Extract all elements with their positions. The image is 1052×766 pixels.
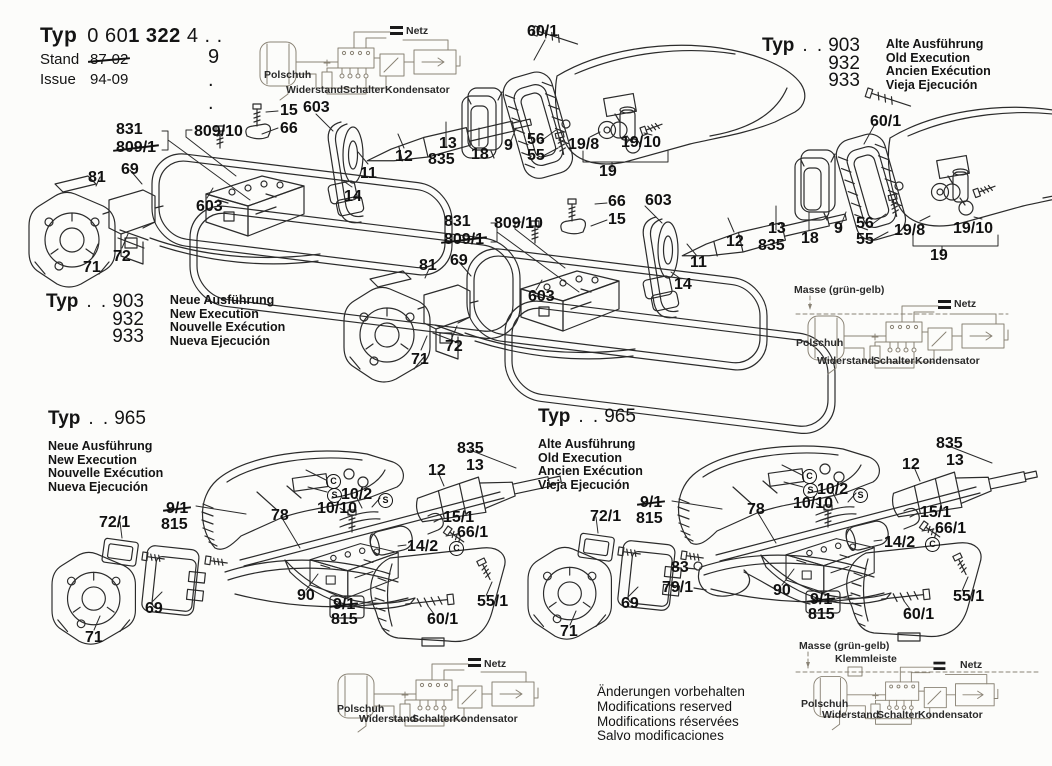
callout-72: 72 — [445, 339, 463, 355]
callout-circle-c: C — [802, 469, 817, 484]
wiring3-label-schalter: Schalter — [412, 714, 453, 725]
issue-label: Issue — [40, 71, 90, 88]
callout-56: 56 — [856, 216, 874, 232]
callout-10-10: 10/10 — [317, 501, 357, 517]
callout-18: 18 — [801, 231, 819, 247]
callout-14-2: 14/2 — [407, 539, 438, 555]
wiring4-label-masse: Masse (grün-gelb) — [799, 641, 889, 652]
wiring2-label-netz: Netz — [954, 299, 976, 310]
wiring4-label-polschuh: Polschuh — [801, 699, 848, 710]
callout-72: 72 — [113, 249, 131, 265]
callout-835: 835 — [936, 436, 963, 452]
callout-18: 18 — [471, 147, 489, 163]
wiring1-label-netz: Netz — [406, 26, 428, 37]
wiring3-label-widerstand: Widerstand — [359, 714, 416, 725]
stand-line: Stand87-02 — [40, 51, 223, 68]
callout-10-10: 10/10 — [793, 496, 833, 512]
callout-circle-s: S — [378, 493, 393, 508]
callout-13: 13 — [946, 453, 964, 469]
callout-11: 11 — [360, 166, 377, 182]
callout-11: 11 — [690, 255, 707, 271]
callout-9-1: 9/1 — [166, 501, 188, 517]
callout-12: 12 — [902, 457, 920, 473]
typ-dots: . . — [802, 35, 824, 56]
callout-15: 15 — [608, 212, 626, 228]
callout-66-1: 66/1 — [457, 525, 488, 541]
typ-dots: . . — [578, 406, 600, 427]
modification-notes: Änderungen vorbehalten Modifications res… — [597, 685, 745, 744]
wiring1-label-schalter: Schalter — [343, 85, 384, 96]
callout-71: 71 — [411, 352, 429, 368]
callout-809-10: 809/10 — [194, 124, 243, 140]
typ-label: Typ — [48, 408, 80, 429]
callout-60-1: 60/1 — [870, 114, 901, 130]
callout-12: 12 — [428, 463, 446, 479]
callout-13: 13 — [466, 458, 484, 474]
callout-14: 14 — [674, 277, 692, 293]
callout-circle-s: S — [803, 483, 818, 498]
callout-831: 831 — [444, 214, 471, 230]
typ-code: 933 — [46, 328, 144, 345]
callout-56: 56 — [527, 132, 545, 148]
callout-circle-c: C — [449, 541, 464, 556]
callout-815: 815 — [161, 517, 188, 533]
callout-71: 71 — [560, 624, 578, 640]
lang-line: Alte Ausführung — [538, 438, 643, 452]
lang-line: Nueva Ejecución — [48, 481, 163, 495]
note-line: Modifications reserved — [597, 700, 745, 715]
callout-9: 9 — [834, 221, 843, 237]
lang-line: Nueva Ejecución — [170, 335, 285, 349]
callout-13: 13 — [439, 136, 457, 152]
title-block: Typ0 601 322 4 . . 9 . . Stand87-02 Issu… — [40, 24, 223, 88]
callout-78: 78 — [747, 502, 765, 518]
typ-dots: . . — [86, 291, 108, 312]
callout-15-1: 15/1 — [920, 505, 951, 521]
callout-603: 603 — [528, 289, 555, 305]
stand-label: Stand — [40, 51, 90, 68]
typ-number-suffix: 4 . . — [181, 25, 223, 47]
callout-83: 83 — [671, 560, 689, 576]
execution-languages: Neue Ausführung New Execution Nouvelle E… — [170, 292, 285, 348]
execution-languages: Neue Ausführung New Execution Nouvelle E… — [48, 440, 163, 494]
issue-value: 94-09 — [90, 71, 128, 88]
callout-19-8: 19/8 — [894, 223, 925, 239]
callout-71: 71 — [83, 260, 101, 276]
lang-line: Ancien Exécution — [538, 465, 643, 479]
lang-line: Alte Ausführung — [886, 38, 991, 52]
callout-90: 90 — [773, 583, 791, 599]
callout-835: 835 — [457, 441, 484, 457]
callout-66-1: 66/1 — [935, 521, 966, 537]
wiring2-label-kondensator: Kondensator — [915, 356, 980, 367]
callout-55: 55 — [856, 232, 874, 248]
callout-60-1: 60/1 — [527, 24, 558, 40]
callout-circle-s: S — [853, 488, 868, 503]
lang-line: Nouvelle Exécution — [48, 467, 163, 481]
typ-code: 965 — [114, 408, 146, 429]
lang-line: Vieja Ejecución — [886, 79, 991, 93]
callout-15: 15 — [280, 103, 298, 119]
type-block-bottom-right: Typ. .965 Alte Ausführung Old Execution … — [538, 406, 643, 492]
execution-languages: Alte Ausführung Old Execution Ancien Exé… — [538, 438, 643, 492]
callout-19: 19 — [930, 248, 948, 264]
wiring1-label-polschuh: Polschuh — [264, 70, 311, 81]
callout-809-10: 809/10 — [494, 216, 543, 232]
type-block-top-right: Typ. .903 932 933 Alte Ausführung Old Ex… — [762, 36, 991, 92]
callout-55: 55 — [527, 148, 545, 164]
callout-72-1: 72/1 — [590, 509, 621, 525]
callout-69: 69 — [121, 162, 139, 178]
lang-line: Ancien Exécution — [886, 65, 991, 79]
callout-809-1: 809/1 — [116, 140, 156, 156]
wiring1-label-kondensator: Kondensator — [385, 85, 450, 96]
callout-815: 815 — [808, 607, 835, 623]
wiring4-label-schalter: Schalter — [877, 710, 918, 721]
stand-value: 87-02 — [90, 51, 128, 68]
callout-81: 81 — [419, 258, 437, 274]
typ-label: Typ — [46, 291, 78, 312]
callout-603: 603 — [303, 100, 330, 116]
callout-603: 603 — [645, 193, 672, 209]
callout-69: 69 — [145, 601, 163, 617]
lang-line: Nouvelle Exécution — [170, 321, 285, 335]
callout-835: 835 — [428, 152, 455, 168]
callout-79-1: 79/1 — [662, 580, 693, 596]
note-line: Änderungen vorbehalten — [597, 685, 745, 700]
typ-label: Typ — [762, 35, 794, 56]
lang-line: Neue Ausführung — [170, 294, 285, 308]
callout-circle-c: C — [925, 537, 940, 552]
note-line: Salvo modificaciones — [597, 729, 745, 744]
callout-19-10: 19/10 — [953, 221, 993, 237]
callout-14-2: 14/2 — [884, 535, 915, 551]
typ-code: 933 — [762, 72, 860, 89]
lang-line: Old Execution — [538, 452, 643, 466]
callout-78: 78 — [271, 508, 289, 524]
callout-69: 69 — [621, 596, 639, 612]
callout-12: 12 — [726, 234, 744, 250]
callout-9: 9 — [504, 138, 513, 154]
typ-label: Typ — [538, 406, 570, 427]
lang-line: New Execution — [170, 308, 285, 322]
callout-55-1: 55/1 — [477, 594, 508, 610]
wiring2-label-schalter: Schalter — [873, 356, 914, 367]
callout-815: 815 — [331, 612, 358, 628]
callout-circle-c: C — [326, 474, 341, 489]
callout-835: 835 — [758, 238, 785, 254]
wiring2-label-masse: Masse (grün-gelb) — [794, 285, 884, 296]
callout-809-1: 809/1 — [444, 232, 484, 248]
type-block-bottom-left: Typ. .965 Neue Ausführung New Execution … — [48, 408, 163, 494]
callout-603: 603 — [196, 199, 223, 215]
callout-71: 71 — [85, 630, 103, 646]
callout-14: 14 — [344, 189, 362, 205]
wiring4-label-klemmleiste: Klemmleiste — [835, 654, 897, 665]
callout-55-1: 55/1 — [953, 589, 984, 605]
typ-label: Typ — [40, 24, 77, 47]
callout-815: 815 — [636, 511, 663, 527]
callout-66: 66 — [280, 121, 298, 137]
typ-number-bold: 1 322 — [128, 25, 181, 47]
wiring4-label-widerstand: Widerstand — [822, 710, 879, 721]
callout-60-1: 60/1 — [903, 607, 934, 623]
callout-12: 12 — [395, 149, 413, 165]
lang-line: Neue Ausführung — [48, 440, 163, 454]
wiring4-label-kondensator: Kondensator — [918, 710, 983, 721]
wiring4-label-netz: Netz — [960, 660, 982, 671]
wiring2-label-widerstand: Widerstand — [817, 356, 874, 367]
typ-code: 965 — [604, 406, 636, 427]
typ-number-prefix: 0 60 — [87, 25, 128, 47]
callout-72-1: 72/1 — [99, 515, 130, 531]
callout-69: 69 — [450, 253, 468, 269]
issue-line: Issue94-09 — [40, 71, 223, 88]
callout-19: 19 — [599, 164, 617, 180]
callout-81: 81 — [88, 170, 106, 186]
wiring3-label-netz: Netz — [484, 659, 506, 670]
lang-line: Old Execution — [886, 52, 991, 66]
typ-number-line2: 9 . . — [208, 46, 223, 115]
type-block-mid-left: Typ. .903 932 933 Neue Ausführung New Ex… — [46, 292, 285, 348]
callout-90: 90 — [297, 588, 315, 604]
callout-60-1: 60/1 — [427, 612, 458, 628]
lang-line: New Execution — [48, 454, 163, 468]
wiring1-label-widerstand: Widerstand — [286, 85, 343, 96]
typ-dots: . . — [88, 408, 110, 429]
callout-66: 66 — [608, 194, 626, 210]
callout-19-10: 19/10 — [621, 135, 661, 151]
type-number-line: Typ0 601 322 4 . . — [40, 24, 223, 48]
callout-13: 13 — [768, 221, 786, 237]
wiring3-label-kondensator: Kondensator — [453, 714, 518, 725]
callout-9-1: 9/1 — [640, 495, 662, 511]
parts-diagram-page: Typ0 601 322 4 . . 9 . . Stand87-02 Issu… — [0, 0, 1052, 766]
note-line: Modifications réservées — [597, 715, 745, 730]
execution-languages: Alte Ausführung Old Execution Ancien Exé… — [886, 36, 991, 92]
callout-circle-s: S — [327, 488, 342, 503]
callout-831: 831 — [116, 122, 143, 138]
callout-19-8: 19/8 — [568, 137, 599, 153]
lang-line: Vieja Ejecución — [538, 479, 643, 493]
wiring2-label-polschuh: Polschuh — [796, 338, 843, 349]
